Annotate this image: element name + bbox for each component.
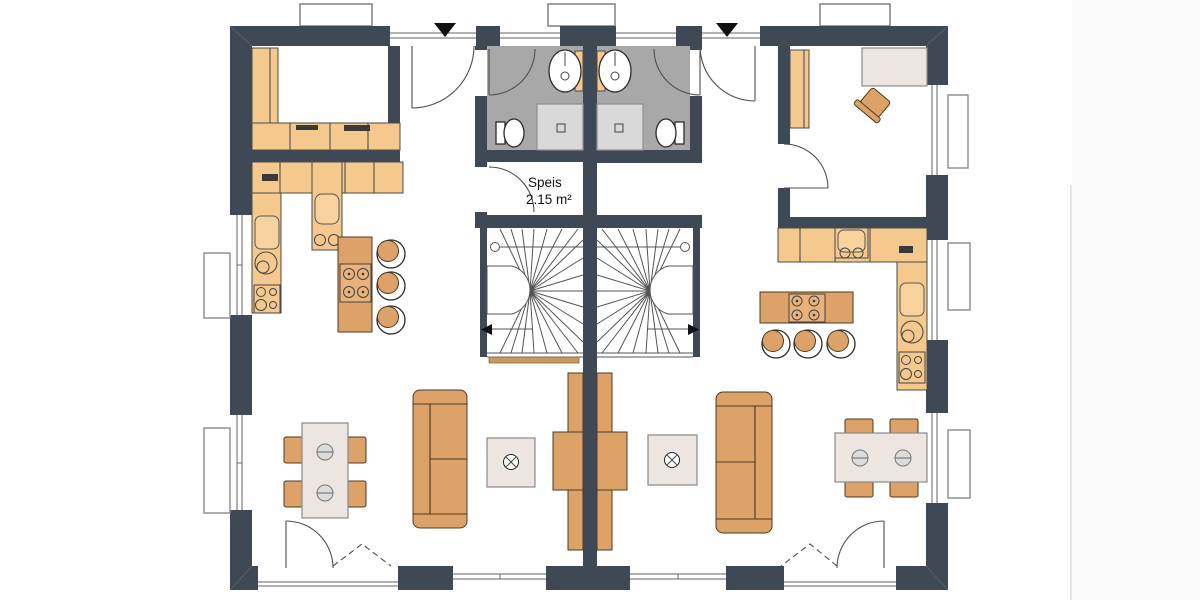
floor-plan-drawing: Speis 2.15 m² <box>0 0 1200 600</box>
floor-plan-page: Speis 2.15 m² <box>0 0 1200 600</box>
shower <box>597 104 643 150</box>
wardrobe <box>790 50 809 128</box>
window-sill-box <box>948 95 968 168</box>
kitchen-sink <box>255 216 279 249</box>
utility-counter <box>252 48 278 125</box>
sofa <box>413 390 467 528</box>
oven-handle <box>262 174 278 181</box>
desk <box>862 48 927 86</box>
window-sill-box <box>948 243 970 310</box>
staircase-left <box>481 228 583 363</box>
bar-stools <box>762 330 855 358</box>
side-table <box>487 438 535 487</box>
party-wall <box>583 46 597 566</box>
kitchen-counter <box>252 193 281 313</box>
chimney-block <box>560 26 616 46</box>
speis-area: 2.15 m² <box>526 192 572 207</box>
side-table <box>648 435 697 485</box>
kitchen-sink <box>900 283 924 316</box>
dormer-box <box>300 4 372 26</box>
dining-table <box>835 433 927 482</box>
dining-table <box>302 423 348 518</box>
stair-step-edge <box>489 357 579 363</box>
bathroom-left <box>487 46 583 150</box>
kitchen-island <box>760 292 853 323</box>
chimney-box <box>548 4 615 26</box>
dormer-box <box>820 4 890 26</box>
stair-newel <box>491 243 500 252</box>
toilet <box>656 119 684 147</box>
page-edge <box>1070 0 1200 600</box>
oven-handle <box>899 246 913 253</box>
staircase-right <box>597 228 699 357</box>
bathroom-right <box>597 46 690 150</box>
stove-unit <box>835 228 868 258</box>
window-sill-box <box>204 253 230 318</box>
speis-label: Speis <box>528 175 562 190</box>
utility-counter <box>252 123 400 150</box>
sofa <box>716 392 772 533</box>
window-sill-box <box>204 428 230 513</box>
toilet <box>496 119 524 147</box>
roof-dormer-boxes <box>300 4 890 26</box>
kitchen-island <box>338 237 372 332</box>
stair-newel <box>681 243 690 252</box>
window-sill-box <box>948 430 970 498</box>
shower <box>537 104 583 150</box>
bar-stools <box>377 240 405 334</box>
